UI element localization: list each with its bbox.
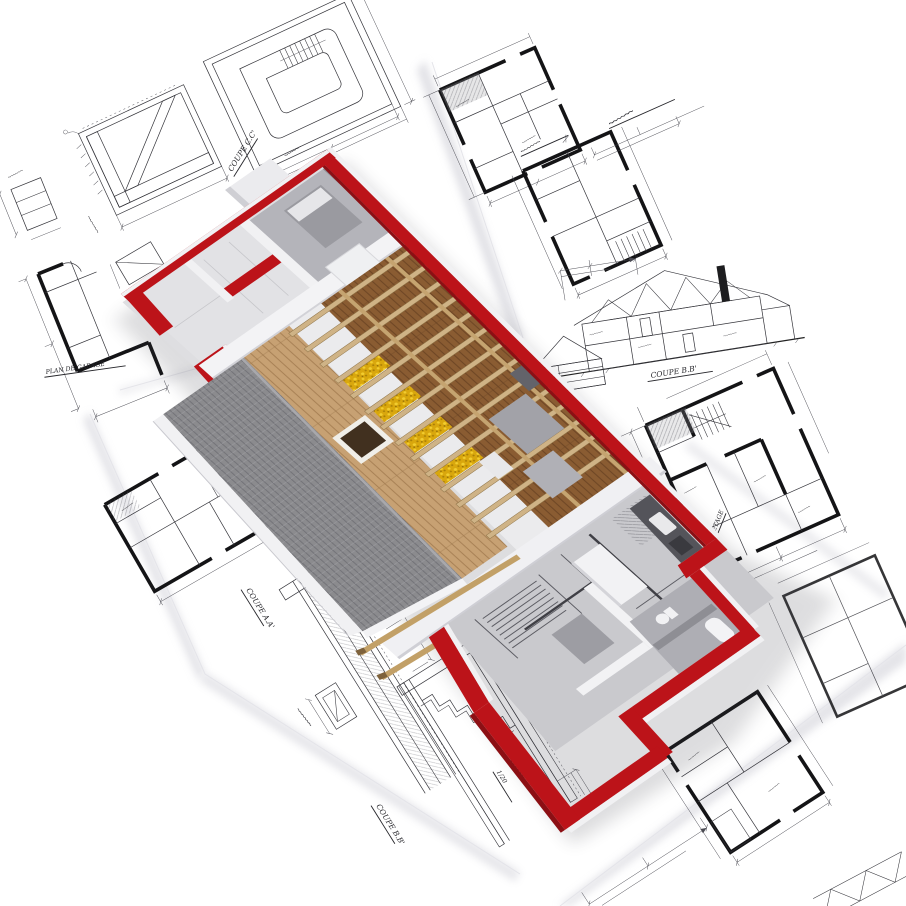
blueprint-drawing-frame-detail — [295, 681, 358, 744]
blueprint-drawing-left-edge-detail — [0, 165, 61, 245]
blueprint-drawing-framing-detail — [51, 75, 231, 241]
label-coupe-cc: COUPE C.C' — [226, 129, 258, 173]
label-plan-garage-group: PLAN DE GARAGE — [43, 358, 125, 377]
blueprint-drawing-truss-section: COUPE B.B' — [538, 251, 808, 397]
label-echelle: 1/20 — [495, 769, 508, 785]
blueprint-drawing-title-spray — [560, 79, 707, 173]
blueprint-drawing-floor-plan-top-right-2 — [504, 108, 679, 303]
blueprint-drawing-bottom-dim-spray — [580, 815, 714, 906]
architectural-render-page: COUPE B.B' 1° ETAGE COUPE A.A' COUPE B. — [0, 0, 906, 906]
label-coupe-aa: COUPE A.A' — [244, 586, 276, 630]
label-coupe-aa-group: COUPE A.A' — [241, 584, 277, 632]
blueprint-drawing-lattice-fragment — [813, 852, 906, 906]
architectural-render-image: COUPE B.B' 1° ETAGE COUPE A.A' COUPE B. — [0, 0, 906, 906]
